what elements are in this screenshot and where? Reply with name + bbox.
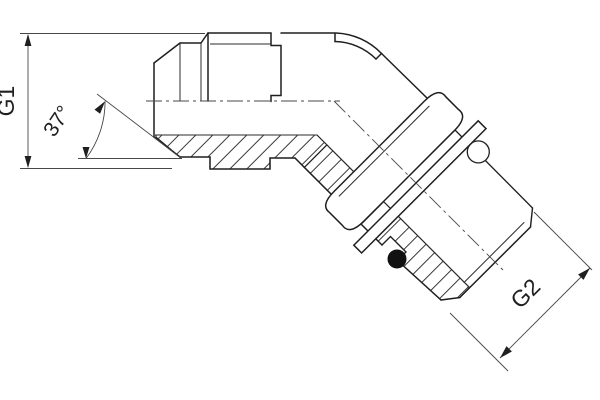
angle-flank-line xyxy=(97,94,181,158)
angle-arrow-top xyxy=(95,101,106,114)
angle-label: 37° xyxy=(39,102,76,141)
tip-inner-line xyxy=(464,223,524,283)
angle-arrow-bottom xyxy=(83,147,90,159)
o-ring-dot xyxy=(388,250,407,269)
tip-chamfer-upper xyxy=(531,208,533,227)
elbow-bend xyxy=(335,33,427,98)
nose-chamfer-top xyxy=(154,43,180,63)
technical-drawing-canvas: G1 37° G2 xyxy=(0,0,600,400)
hex-body-right-face xyxy=(271,33,281,102)
g2-extension-lower xyxy=(450,313,508,371)
fitting-drawing: G1 37° G2 xyxy=(0,0,600,400)
g1-arrow-down xyxy=(25,156,32,168)
dimension-angle-37: 37° xyxy=(39,94,182,159)
g2-extension-upper xyxy=(534,212,592,270)
horizontal-port-thin-lines xyxy=(155,43,317,135)
g1-arrow-up xyxy=(25,34,32,46)
elbow-outer-edge xyxy=(382,54,428,99)
g2-dimension-line xyxy=(500,268,590,358)
g2-label: G2 xyxy=(505,273,545,313)
g1-label: G1 xyxy=(0,86,19,117)
